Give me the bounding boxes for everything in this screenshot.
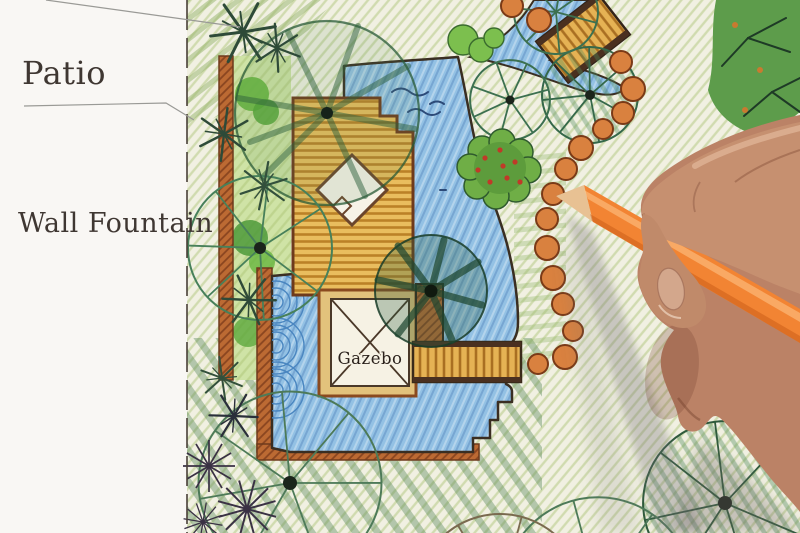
- photo-of-landscape-plan: Gazebo: [0, 0, 800, 533]
- tree-icon: [375, 235, 487, 347]
- gazebo-label: Gazebo: [338, 349, 403, 368]
- patio-label: Patio: [22, 54, 106, 92]
- tree-icon: [235, 21, 419, 205]
- boardwalk: [413, 342, 521, 382]
- landscape-plan-drawing: Gazebo: [0, 0, 800, 533]
- wall-fountain-label: Wall Fountain: [18, 208, 213, 239]
